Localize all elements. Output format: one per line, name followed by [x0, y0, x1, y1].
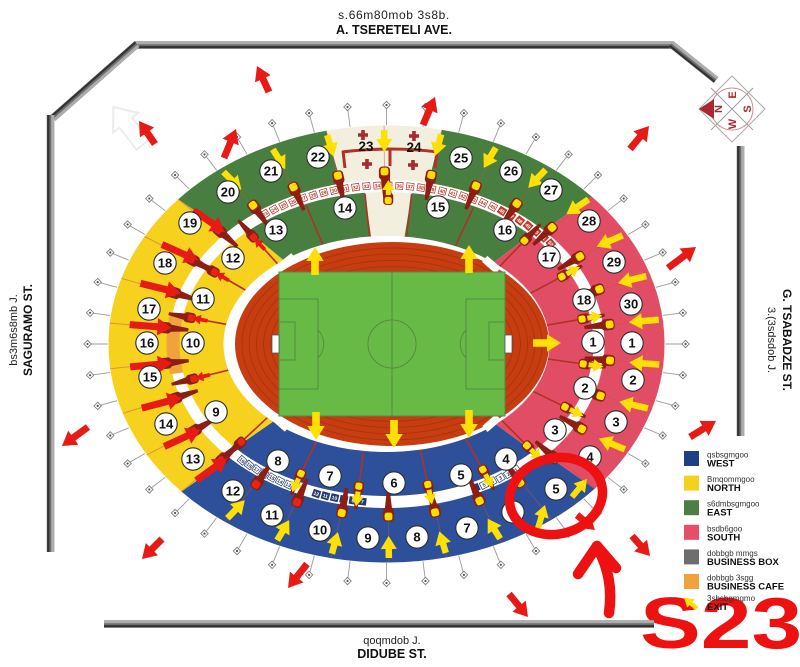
svg-text:10: 10 [186, 336, 200, 351]
svg-text:7: 7 [463, 521, 470, 536]
svg-text:27: 27 [544, 183, 558, 198]
svg-text:9: 9 [364, 531, 371, 546]
svg-text:DIDUBE ST.: DIDUBE ST. [357, 647, 426, 661]
svg-text:15: 15 [431, 200, 445, 215]
svg-text:23: 23 [358, 139, 374, 154]
svg-text:11: 11 [196, 292, 210, 307]
svg-text:5: 5 [457, 468, 464, 483]
svg-text:19: 19 [183, 216, 197, 231]
svg-text:13: 13 [269, 223, 283, 238]
svg-text:18: 18 [158, 256, 172, 271]
svg-text:16: 16 [140, 336, 154, 351]
svg-text:18: 18 [577, 293, 591, 308]
svg-text:E: E [727, 91, 739, 98]
svg-text:36: 36 [396, 184, 402, 190]
svg-text:15: 15 [143, 370, 157, 385]
svg-text:32: 32 [353, 185, 360, 192]
svg-text:1: 1 [628, 336, 635, 351]
svg-text:29: 29 [607, 255, 621, 270]
svg-text:WEST: WEST [707, 459, 735, 470]
svg-text:12: 12 [226, 484, 240, 499]
svg-text:21: 21 [264, 164, 278, 179]
svg-text:S: S [742, 105, 754, 112]
svg-text:33: 33 [364, 184, 370, 191]
svg-text:W: W [727, 118, 739, 129]
svg-text:BUSINESS CAFE: BUSINESS CAFE [707, 582, 784, 593]
svg-text:6: 6 [390, 476, 397, 491]
svg-text:9: 9 [212, 405, 219, 420]
svg-text:s.66m80mob 3s8b.: s.66m80mob 3s8b. [338, 8, 450, 22]
svg-text:3.(3sdsdob J.: 3.(3sdsdob J. [765, 307, 777, 373]
svg-text:12: 12 [226, 251, 240, 266]
svg-text:22: 22 [311, 150, 325, 165]
svg-text:SOUTH: SOUTH [707, 532, 740, 543]
svg-text:8: 8 [274, 454, 281, 469]
svg-text:24: 24 [406, 140, 422, 155]
svg-text:A. TSERETELI AVE.: A. TSERETELI AVE. [336, 23, 452, 37]
svg-text:17: 17 [142, 302, 156, 317]
svg-text:20: 20 [221, 185, 235, 200]
svg-text:8: 8 [413, 530, 420, 545]
svg-text:EXIT: EXIT [707, 602, 728, 613]
svg-text:25: 25 [454, 151, 468, 166]
svg-text:BUSINESS BOX: BUSINESS BOX [707, 557, 779, 568]
svg-text:13: 13 [186, 452, 200, 467]
svg-text:30: 30 [624, 297, 638, 312]
svg-text:N: N [713, 105, 725, 113]
svg-text:26: 26 [504, 164, 518, 179]
svg-text:G. TSABADZE ST.: G. TSABADZE ST. [780, 289, 794, 391]
svg-text:2: 2 [581, 381, 588, 396]
svg-text:3: 3 [612, 415, 619, 430]
svg-text:14: 14 [159, 417, 174, 432]
svg-text:5: 5 [552, 482, 559, 497]
svg-text:bs3m6s8mb J.: bs3m6s8mb J. [8, 294, 20, 366]
svg-text:14: 14 [338, 201, 353, 216]
svg-text:1: 1 [589, 335, 596, 350]
svg-text:17: 17 [542, 250, 556, 265]
svg-text:16: 16 [498, 223, 512, 238]
svg-text:3: 3 [551, 423, 558, 438]
svg-text:34: 34 [375, 183, 381, 189]
svg-text:37: 37 [407, 184, 413, 191]
svg-text:EAST: EAST [707, 508, 733, 519]
svg-text:11: 11 [265, 508, 279, 523]
svg-text:28: 28 [582, 214, 596, 229]
svg-text:4: 4 [502, 452, 510, 467]
svg-text:2: 2 [629, 373, 636, 388]
svg-text:SAGURAMO ST.: SAGURAMO ST. [21, 284, 35, 376]
svg-text:qoqmdob J.: qoqmdob J. [363, 635, 420, 647]
svg-text:7: 7 [326, 469, 333, 484]
svg-text:10: 10 [313, 523, 327, 538]
svg-text:NORTH: NORTH [707, 483, 741, 494]
